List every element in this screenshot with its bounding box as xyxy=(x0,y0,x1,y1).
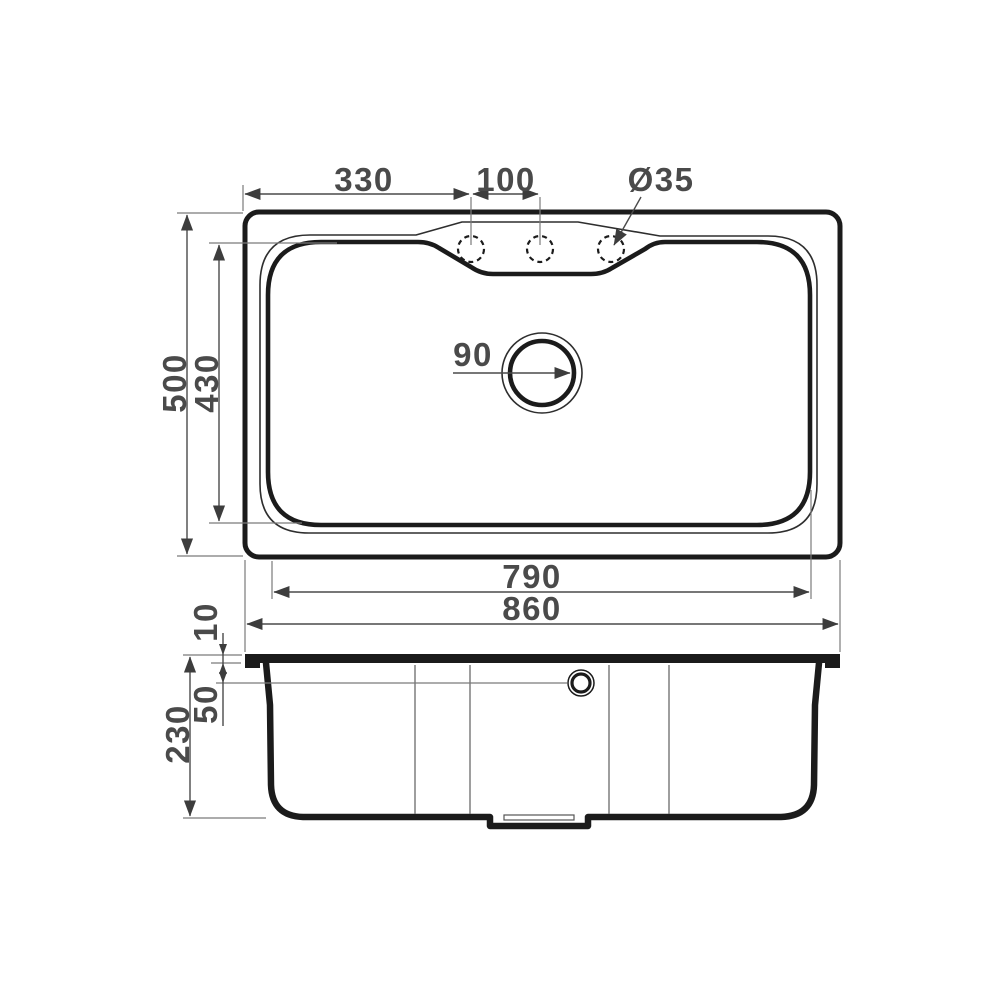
dim-label-overall-width: 860 xyxy=(502,590,562,627)
sink-outer-edge xyxy=(245,212,840,557)
dim-label-bowl-depth: 430 xyxy=(188,353,225,413)
rim-lip-right xyxy=(825,663,840,668)
bowl-edge xyxy=(268,242,810,525)
faucet-hole-3 xyxy=(598,236,624,262)
dim-label-rim-height: 10 xyxy=(187,602,224,642)
top-view xyxy=(245,212,840,557)
sink-technical-drawing: 330 100 Ø35 500 430 90 790 860 xyxy=(0,0,1000,1000)
rim-profile xyxy=(245,654,840,663)
side-view-dimensions: 10 50 230 xyxy=(159,602,567,818)
body-outline xyxy=(266,663,819,826)
drawing-svg: 330 100 Ø35 500 430 90 790 860 xyxy=(0,0,1000,1000)
overflow-inner-circle xyxy=(572,674,590,692)
dim-label-total-height: 230 xyxy=(159,704,196,764)
dim-label-hole-spacing: 100 xyxy=(476,161,536,198)
dim-label-hole-diameter: Ø35 xyxy=(628,161,695,198)
dim-label-faucet-offset: 330 xyxy=(334,161,394,198)
side-view xyxy=(245,654,840,826)
drain-sump-flange xyxy=(504,815,574,820)
arrow-overflow xyxy=(219,672,227,683)
rim-lip-left xyxy=(245,663,260,668)
dim-label-drain-diameter: 90 xyxy=(453,336,493,373)
deck-contour xyxy=(260,222,817,533)
leader-hole-diameter xyxy=(614,197,641,245)
top-view-dimensions: 330 100 Ø35 500 430 90 790 860 xyxy=(156,161,840,652)
arrow-rim-top xyxy=(219,644,227,655)
